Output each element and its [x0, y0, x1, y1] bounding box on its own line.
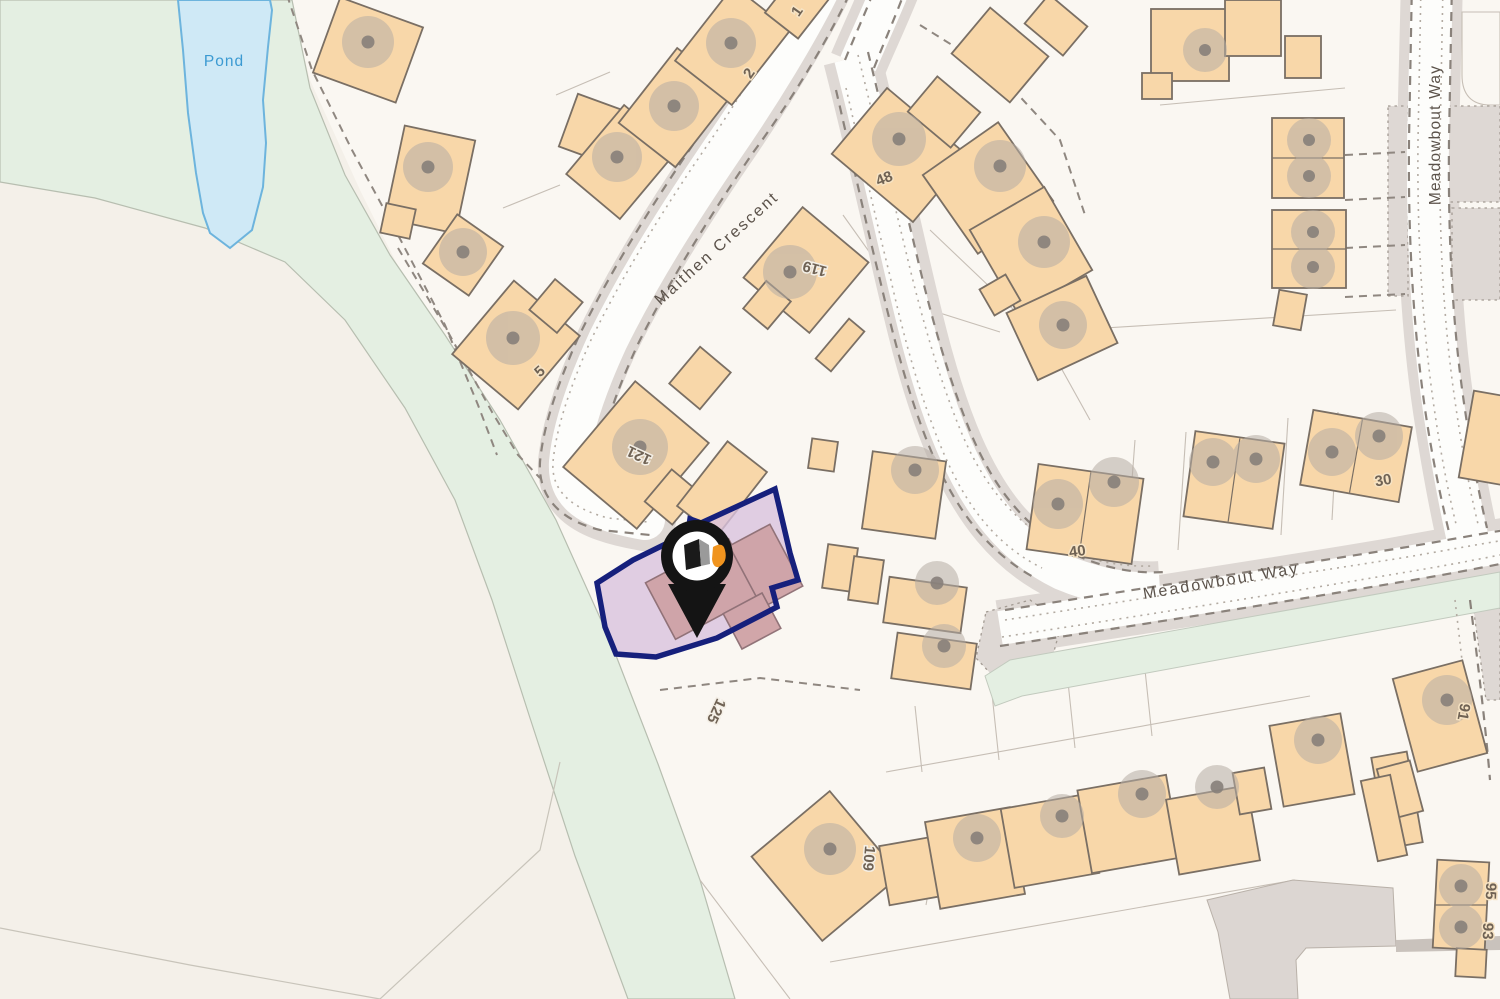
building	[808, 438, 838, 471]
turning-head	[1462, 12, 1500, 105]
street-label-meadowbout-way-vertical: Meadowbout Way	[1427, 65, 1444, 205]
house-number: 95	[1482, 883, 1500, 900]
building	[1273, 290, 1307, 330]
building	[1285, 36, 1321, 78]
house-number: 109	[859, 845, 878, 871]
building	[380, 203, 416, 239]
building	[1225, 0, 1281, 56]
map-svg[interactable]: Pond Maithen Crescent Meadowbout Way Mea…	[0, 0, 1500, 999]
house-number: 93	[1479, 923, 1497, 940]
building	[1455, 948, 1486, 978]
house-number: 30	[1374, 471, 1393, 491]
map-canvas[interactable]: Pond Maithen Crescent Meadowbout Way Mea…	[0, 0, 1500, 999]
house-number: 40	[1068, 542, 1087, 561]
building	[848, 556, 884, 604]
building	[1142, 73, 1172, 99]
house-number: 91	[1454, 702, 1474, 721]
pond-label: Pond	[204, 53, 244, 70]
